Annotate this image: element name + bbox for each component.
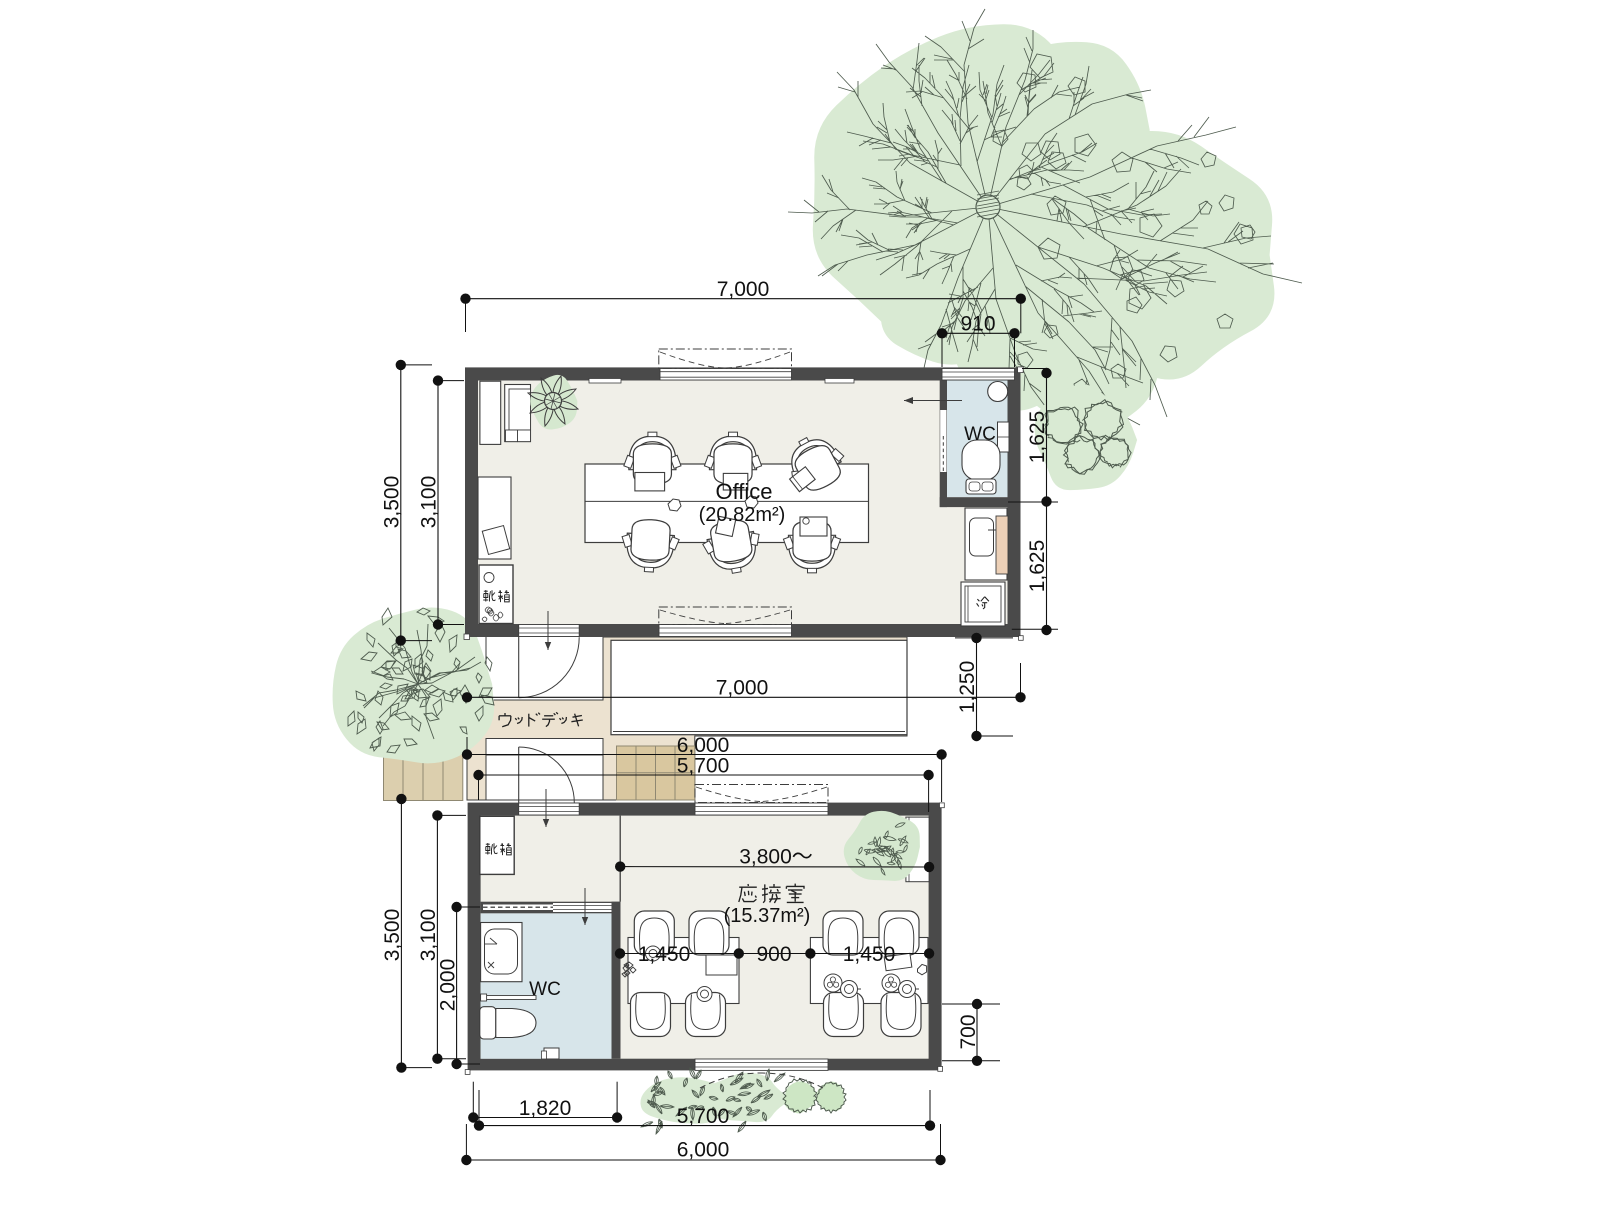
svg-text:Office: Office (715, 479, 772, 504)
svg-text:1,820: 1,820 (519, 1097, 572, 1120)
svg-text:WC: WC (529, 979, 561, 1000)
svg-text:1,250: 1,250 (956, 661, 979, 714)
svg-text:700: 700 (957, 1014, 980, 1049)
svg-text:3,500: 3,500 (381, 909, 404, 962)
svg-text:7,000: 7,000 (717, 278, 770, 301)
svg-text:1,450: 1,450 (638, 943, 691, 966)
svg-text:2,000: 2,000 (437, 959, 460, 1012)
svg-text:900: 900 (756, 943, 791, 966)
svg-text:3,800～: 3,800～ (739, 846, 813, 869)
svg-text:1,625: 1,625 (1026, 411, 1049, 464)
svg-text:3,100: 3,100 (417, 909, 440, 962)
svg-text:3,500: 3,500 (381, 476, 404, 529)
svg-text:1,450: 1,450 (843, 943, 896, 966)
svg-text:(20.82m²): (20.82m²) (699, 504, 786, 526)
svg-text:1,625: 1,625 (1026, 540, 1049, 593)
svg-text:5,700: 5,700 (677, 755, 730, 778)
svg-text:WC: WC (964, 424, 996, 445)
svg-text:(15.37m²): (15.37m²) (724, 905, 811, 927)
svg-text:6,000: 6,000 (677, 1139, 730, 1162)
svg-text:5,700: 5,700 (677, 1105, 730, 1128)
svg-text:7,000: 7,000 (716, 677, 769, 700)
svg-text:3,100: 3,100 (418, 476, 441, 529)
svg-text:910: 910 (960, 313, 995, 336)
